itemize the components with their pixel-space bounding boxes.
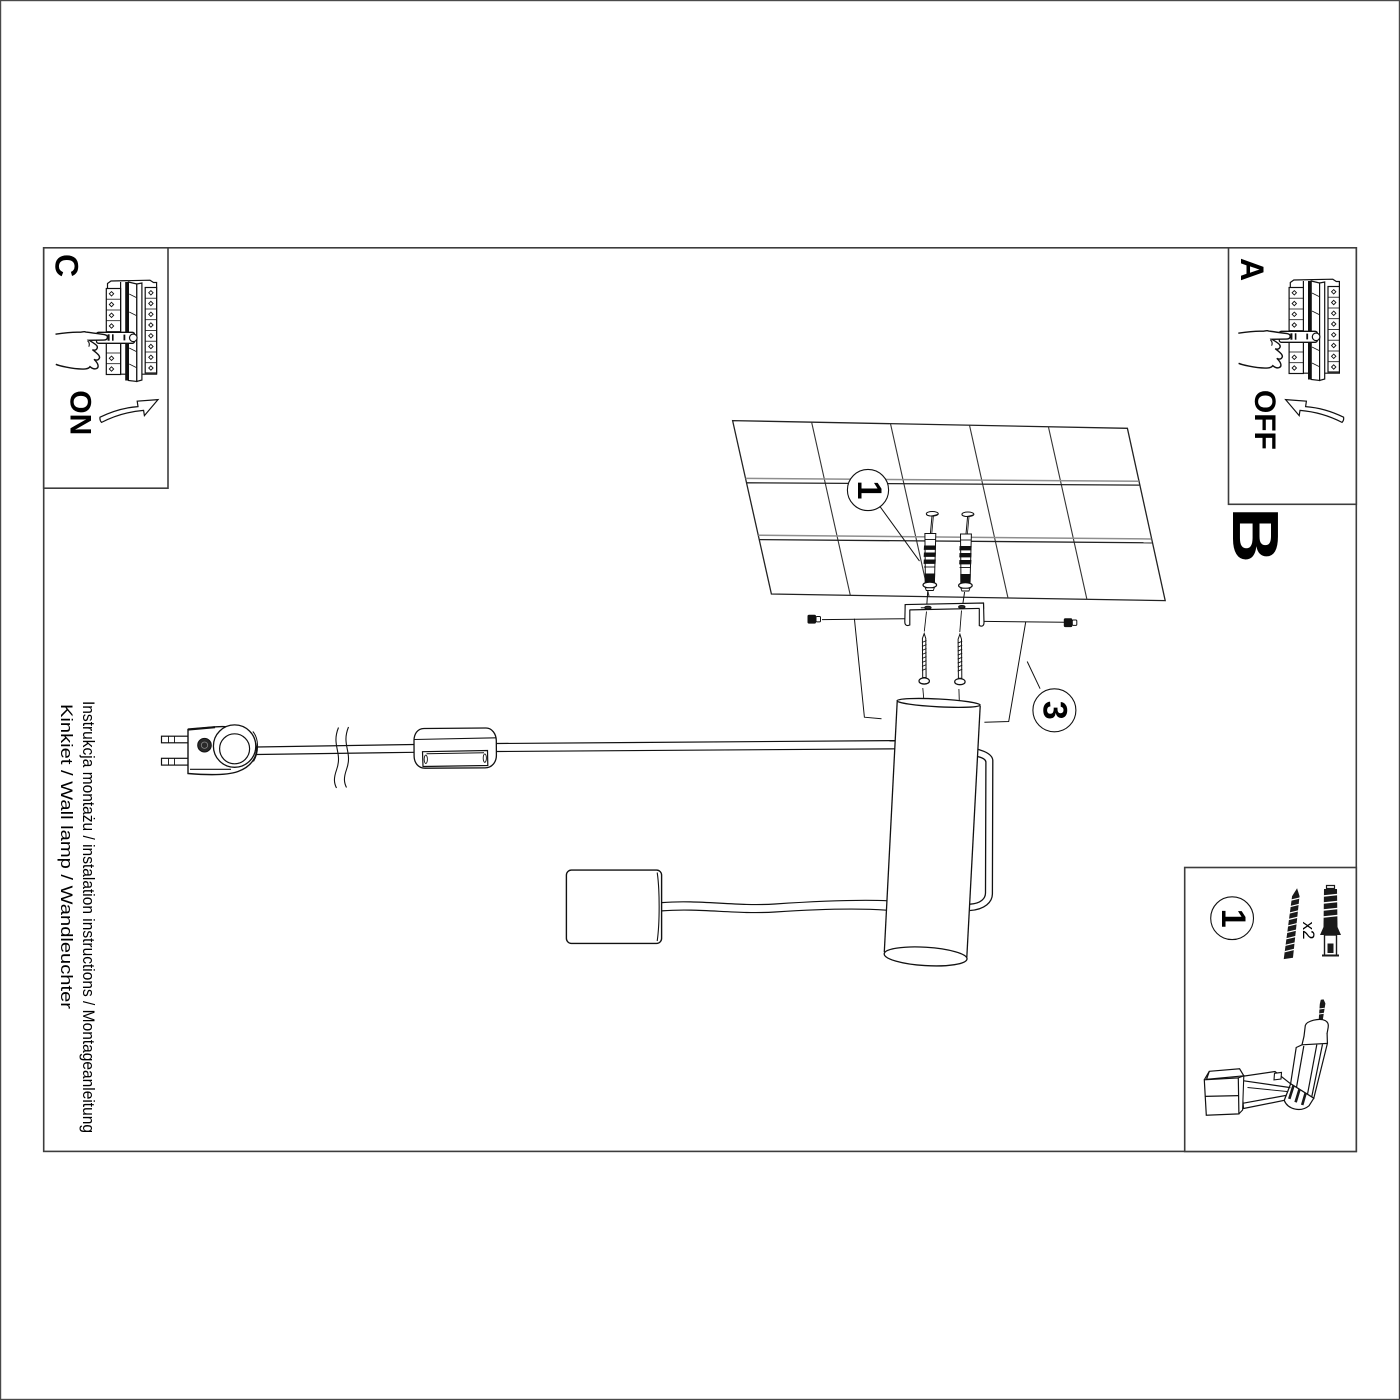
svg-text:A: A xyxy=(1234,258,1270,281)
svg-text:x2: x2 xyxy=(1299,922,1318,940)
svg-text:B: B xyxy=(1219,507,1292,563)
svg-text:C: C xyxy=(49,254,85,277)
svg-text:1: 1 xyxy=(850,481,888,500)
svg-text:ON: ON xyxy=(64,390,97,435)
svg-text:3: 3 xyxy=(1035,701,1073,720)
svg-text:Kinkiet / Wall lamp / Wandleuc: Kinkiet / Wall lamp / Wandleuchter xyxy=(57,704,76,1009)
svg-text:1: 1 xyxy=(1214,909,1252,928)
svg-text:OFF: OFF xyxy=(1248,390,1281,450)
svg-text:Instrukcja montażu / instalati: Instrukcja montażu / instalation instruc… xyxy=(79,701,97,1133)
